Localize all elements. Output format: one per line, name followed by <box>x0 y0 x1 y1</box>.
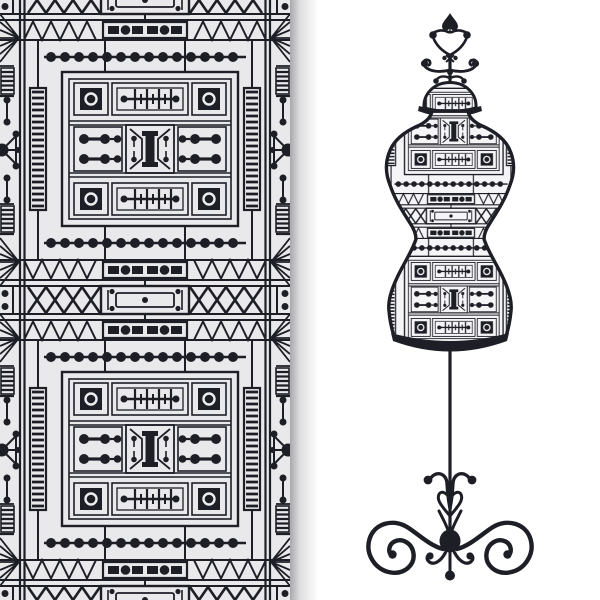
panel-edge-shadow <box>290 0 318 600</box>
artwork <box>0 0 600 600</box>
base-drop-ball <box>445 571 455 581</box>
base-heart-dot <box>448 500 453 505</box>
illustration-canvas <box>0 0 600 600</box>
pattern-panel <box>0 0 290 600</box>
base-node <box>440 530 461 553</box>
finial-collar <box>447 69 453 75</box>
